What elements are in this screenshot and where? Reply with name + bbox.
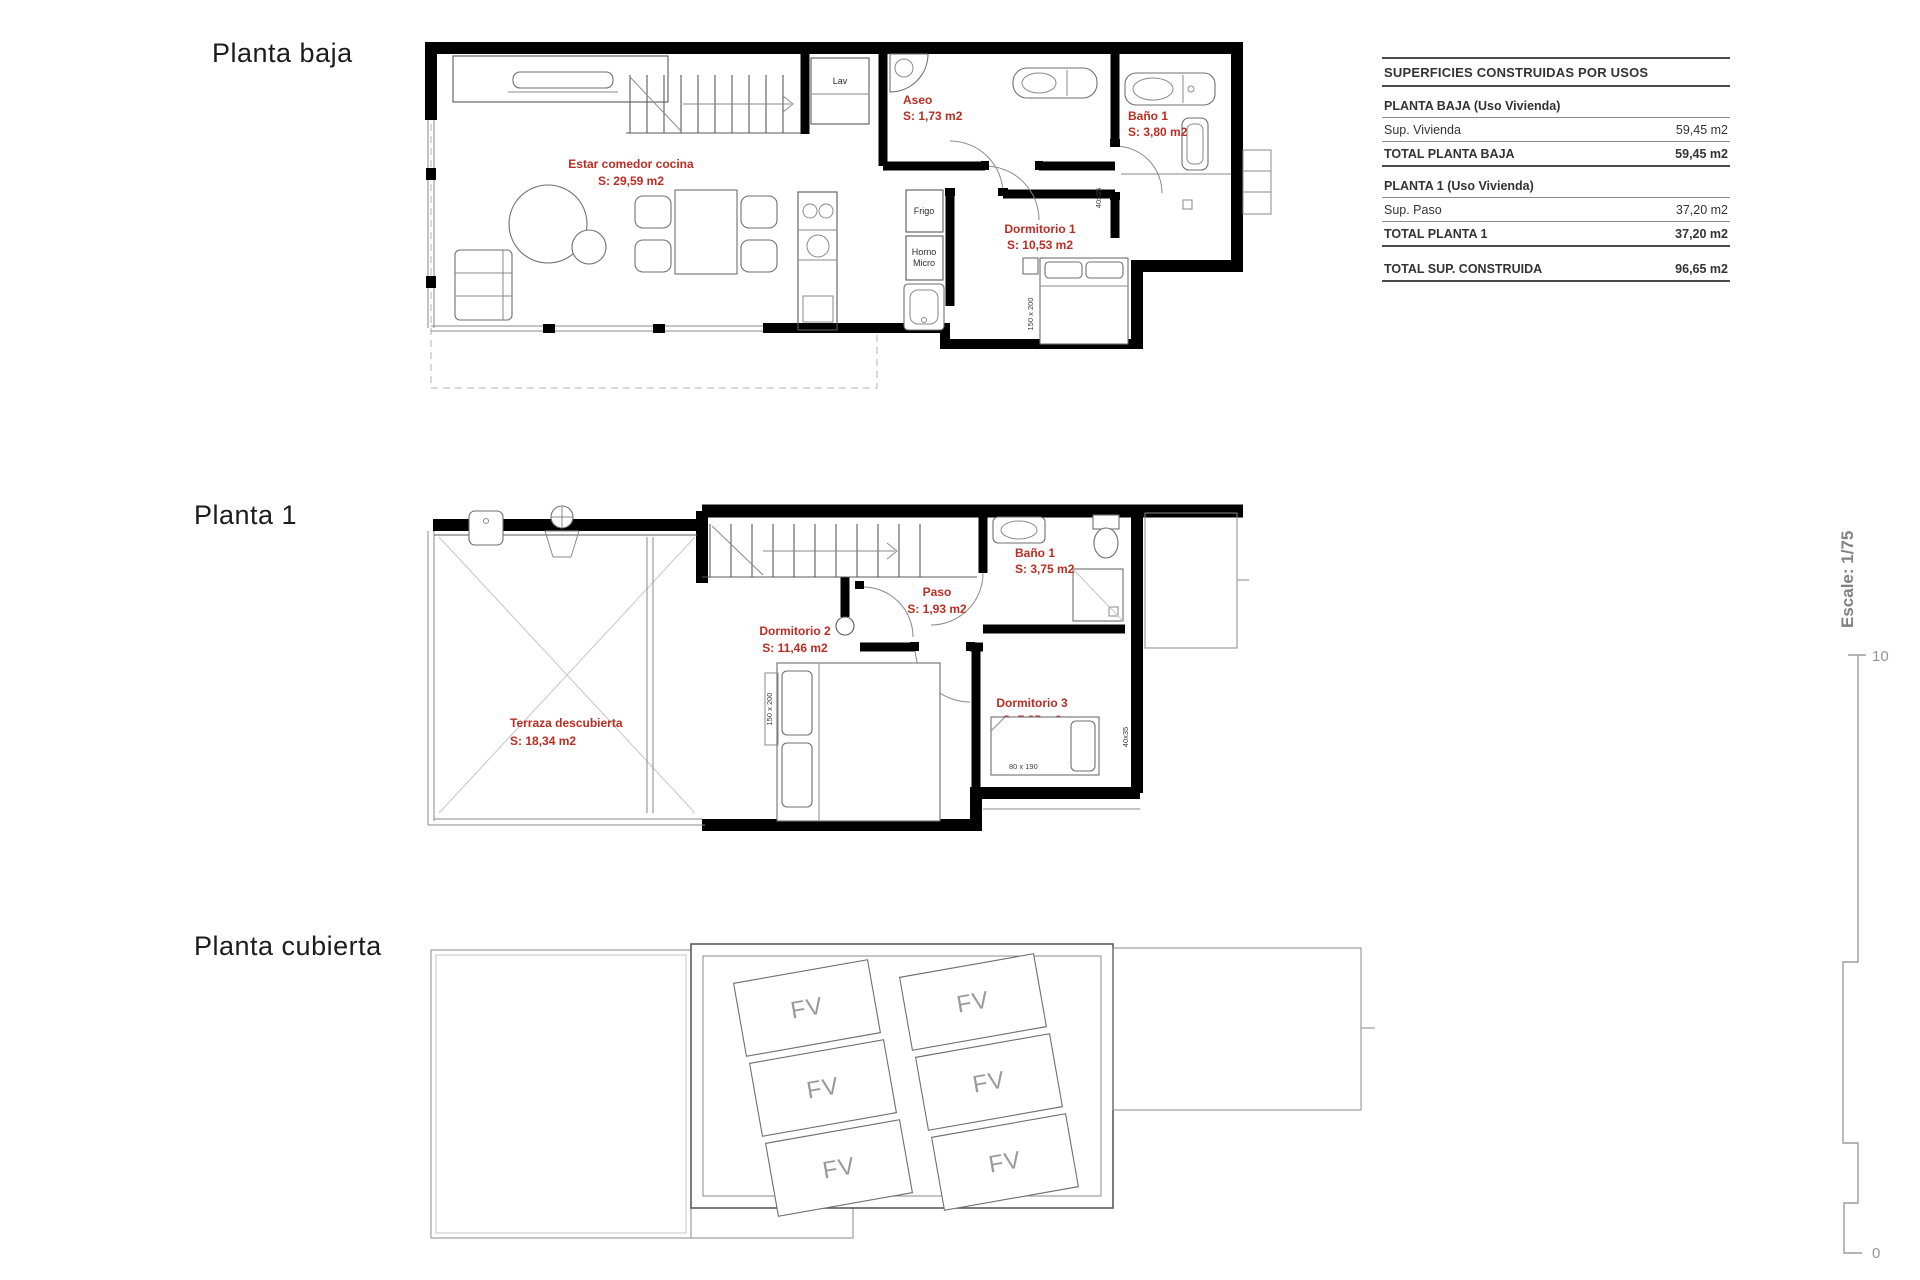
- row-value: 37,20 m2: [1676, 203, 1728, 217]
- estar-name: Estar comedor cocina: [568, 157, 694, 171]
- dormitorio3-name: Dormitorio 3: [996, 696, 1068, 710]
- planta-baja-drawing: Lav Aseo S: 1,73 m2 Frigo Horno Micro: [425, 28, 1285, 400]
- row-value: 96,65 m2: [1675, 262, 1728, 276]
- shower-corner: [890, 54, 928, 92]
- scale-top-value: 10: [1872, 648, 1889, 665]
- bed-double: [1040, 258, 1128, 344]
- section-header: PLANTA BAJA (Uso Vivienda): [1382, 93, 1730, 118]
- horno-label-1: Horno: [912, 247, 937, 257]
- sofa: [455, 250, 512, 320]
- svg-text:FV: FV: [987, 1146, 1024, 1178]
- paso-area: S: 1,93 m2: [907, 602, 967, 616]
- drawing-sheet: Planta baja Planta 1 Planta cubierta: [0, 0, 1920, 1280]
- bed-double: [777, 663, 940, 821]
- living-room: Estar comedor cocina S: 29,59 m2: [455, 157, 777, 320]
- scale-label: Escale: 1/75: [1838, 531, 1858, 628]
- bed-dim: 150 x 200: [1026, 298, 1035, 331]
- areas-table-section-pb: PLANTA BAJA (Uso Vivienda) Sup. Vivienda…: [1382, 93, 1730, 167]
- table-row-total: TOTAL PLANTA BAJA 59,45 m2: [1382, 142, 1730, 167]
- toilet-tank: [1093, 515, 1119, 529]
- window-bottom: [431, 324, 763, 333]
- terraza-area: S: 18,34 m2: [510, 734, 576, 748]
- neighbor-outline: [1145, 513, 1249, 648]
- row-value: 59,45 m2: [1676, 123, 1728, 137]
- estar-area: S: 29,59 m2: [598, 174, 664, 188]
- dining-set: [635, 190, 777, 274]
- row-label: TOTAL PLANTA 1: [1384, 227, 1487, 241]
- dormitorio2-door-arc: [863, 587, 913, 637]
- exterior-shaft: [1243, 150, 1271, 214]
- toilet: [1094, 528, 1118, 558]
- bathtub: [1125, 73, 1215, 105]
- table-row: Sup. Paso 37,20 m2: [1382, 198, 1730, 222]
- svg-text:FV: FV: [971, 1066, 1008, 1098]
- title-planta-baja: Planta baja: [212, 38, 353, 69]
- title-planta-cubierta: Planta cubierta: [194, 931, 382, 962]
- table-row-total: TOTAL PLANTA 1 37,20 m2: [1382, 222, 1730, 247]
- bed-dim: 150 x 200: [765, 693, 774, 726]
- dormitorio-1: Dormitorio 1 S: 10,53 m2 150 x 200 40x35: [945, 141, 1128, 344]
- scale-bottom-value: 0: [1872, 1245, 1880, 1262]
- dormitorio1-name: Dormitorio 1: [1004, 222, 1076, 236]
- terrace: Terraza descubierta S: 18,34 m2: [428, 506, 705, 825]
- aseo-name: Aseo: [903, 93, 932, 107]
- planta-1-drawing: Terraza descubierta S: 18,34 m2 Paso S: …: [425, 495, 1305, 860]
- laundry-closet: Lav: [811, 58, 869, 124]
- dormitorio2-name: Dormitorio 2: [759, 624, 831, 638]
- neighbor-outline: [1113, 948, 1375, 1110]
- dormitorio1-area: S: 10,53 m2: [1007, 238, 1073, 252]
- svg-text:FV: FV: [789, 992, 826, 1024]
- vent-symbol: [545, 506, 579, 557]
- frigo-label: Frigo: [914, 206, 935, 216]
- lav-label: Lav: [833, 76, 848, 86]
- horno-label-2: Micro: [913, 258, 935, 268]
- row-label: TOTAL SUP. CONSTRUIDA: [1384, 262, 1542, 276]
- scale-bar-line: [1843, 655, 1866, 1253]
- stairs-direction-arrow: [683, 96, 793, 112]
- appliance-column: Frigo Horno Micro: [904, 190, 944, 330]
- bano1-pb: Baño 1 S: 3,80 m2: [1110, 73, 1231, 209]
- column: [836, 617, 854, 635]
- scale-bar: 10 0: [1830, 640, 1920, 1280]
- areas-table-title: SUPERFICIES CONSTRUIDAS POR USOS: [1382, 57, 1730, 87]
- bed-single: [991, 717, 1099, 775]
- stairs-direction-arrow: [763, 543, 897, 559]
- planta-cubierta-drawing: FV FV FV FV FV FV: [425, 920, 1385, 1265]
- stairs: [626, 75, 801, 133]
- section-header: PLANTA 1 (Uso Vivienda): [1382, 173, 1730, 198]
- bano1-p1-name: Baño 1: [1015, 546, 1055, 560]
- terrace-cross-lines: [439, 537, 695, 813]
- dormitorio2-area: S: 11,46 m2: [762, 641, 828, 655]
- svg-text:FV: FV: [805, 1072, 842, 1104]
- stairs: [702, 524, 977, 577]
- paso-name: Paso: [923, 585, 952, 599]
- bano1-pb-area: S: 3,80 m2: [1128, 125, 1188, 139]
- bano1-p1-door-arc: [931, 573, 983, 625]
- row-value: 59,45 m2: [1675, 147, 1728, 161]
- bano1-pb-door-arc: [1115, 146, 1162, 193]
- row-label: TOTAL PLANTA BAJA: [1384, 147, 1515, 161]
- svg-text:FV: FV: [955, 986, 992, 1018]
- table-row: Sup. Vivienda 59,45 m2: [1382, 118, 1730, 142]
- washbasin: [1013, 68, 1097, 98]
- kitchen-counter: [453, 56, 668, 102]
- hob: [807, 235, 829, 257]
- aseo-area: S: 1,73 m2: [903, 109, 963, 123]
- shower: [1073, 569, 1123, 621]
- areas-table-section-p1: PLANTA 1 (Uso Vivienda) Sup. Paso 37,20 …: [1382, 173, 1730, 247]
- bano1-p1-area: S: 3,75 m2: [1015, 562, 1075, 576]
- bano1-pb-name: Baño 1: [1128, 109, 1168, 123]
- title-planta-1: Planta 1: [194, 500, 297, 531]
- row-label: Sup. Vivienda: [1384, 123, 1461, 137]
- window-dim: 40x35: [1094, 188, 1103, 208]
- window-dim: 40x35: [1121, 727, 1130, 747]
- table-row-grand-total: TOTAL SUP. CONSTRUIDA 96,65 m2: [1382, 257, 1730, 282]
- dormitorio-2: Dormitorio 2 S: 11,46 m2 150 x 200: [759, 624, 940, 821]
- svg-text:FV: FV: [821, 1152, 858, 1184]
- areas-table: SUPERFICIES CONSTRUIDAS POR USOS PLANTA …: [1382, 57, 1730, 282]
- terrace-sink: [469, 511, 503, 545]
- kitchen-island: [798, 192, 837, 330]
- row-label: Sup. Paso: [1384, 203, 1442, 217]
- nightstand: [1023, 258, 1038, 274]
- row-value: 37,20 m2: [1675, 227, 1728, 241]
- bano1-p1: Baño 1 S: 3,75 m2: [993, 515, 1123, 621]
- bed-single-dim: 80 x 190: [1009, 762, 1038, 771]
- terraza-name: Terraza descubierta: [510, 716, 623, 730]
